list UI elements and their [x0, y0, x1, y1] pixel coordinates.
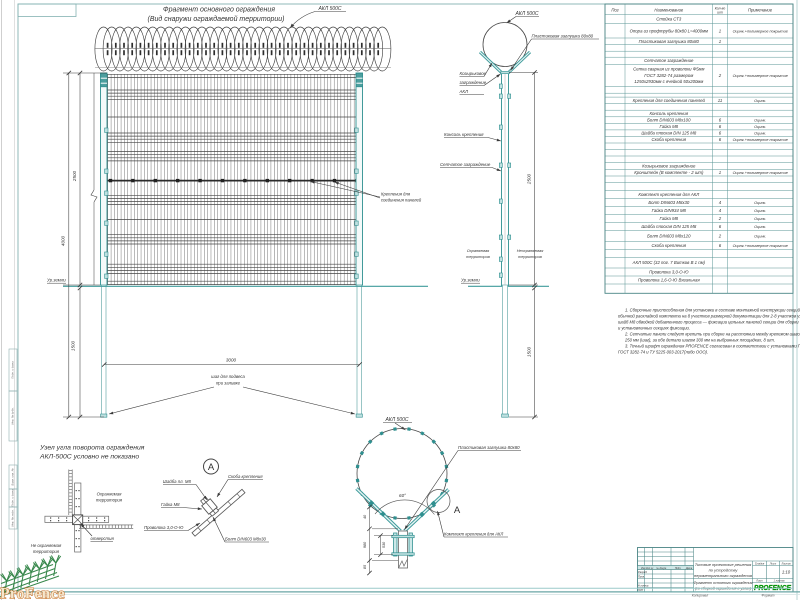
svg-text:Козырьковое заграждение: Козырьковое заграждение	[642, 164, 696, 169]
svg-text:Оцинк.: Оцинк.	[754, 217, 766, 221]
svg-text:соединения панелей: соединения панелей	[381, 198, 422, 203]
svg-text:периметрального ограждения: периметрального ограждения	[694, 573, 753, 578]
svg-text:Крепления для соединения панел: Крепления для соединения панелей	[633, 98, 706, 103]
svg-text:Стадия: Стадия	[755, 563, 765, 566]
svg-text:АКЛ 500С: АКЛ 500С	[317, 6, 341, 12]
svg-text:Оцинк.+полимерное покрытие: Оцинк.+полимерное покрытие	[733, 244, 788, 248]
svg-text:Оцинк.+полимерное покрытие: Оцинк.+полимерное покрытие	[733, 138, 788, 142]
svg-text:Оцинк.+полимерное покрытие: Оцинк.+полимерное покрытие	[733, 74, 788, 78]
svg-text:Консоль крепления: Консоль крепления	[649, 111, 688, 116]
svg-text:Скоба крепления: Скоба крепления	[652, 137, 687, 142]
svg-text:Подп. и дата: Подп. и дата	[11, 489, 15, 507]
svg-text:Охраняемая: Охраняемая	[97, 492, 123, 497]
svg-text:Инв. № подл.: Инв. № подл.	[11, 509, 15, 527]
svg-text:Сетчатое заграждение: Сетчатое заграждение	[644, 58, 694, 63]
svg-text:Шайба плоская DIN 125 М8: Шайба плоская DIN 125 М8	[641, 224, 697, 229]
svg-text:ГОСТ 3282-74 и ТУ 5225-003-201: ГОСТ 3282-74 и ТУ 5225-003-2017(либо ООО…	[618, 350, 708, 355]
svg-text:Проволока 1,6-О-Ю Вязальная: Проволока 1,6-О-Ю Вязальная	[638, 278, 700, 283]
svg-text:Опора из профтрубы 80х80 L=400: Опора из профтрубы 80х80 L=4000мм	[630, 28, 708, 33]
svg-text:при заливке: при заливке	[216, 381, 241, 386]
svg-text:ProFence: ProFence	[0, 586, 65, 601]
svg-text:Скоба крепления: Скоба крепления	[228, 474, 263, 479]
svg-text:Комплект крепления для АКЛ: Комплект крепления для АКЛ	[638, 192, 699, 197]
svg-text:Гайка DIN934 М8: Гайка DIN934 М8	[652, 208, 687, 213]
svg-text:Болт DIN603 М8х30: Болт DIN603 М8х30	[225, 537, 267, 542]
svg-text:Охраняемая: Охраняемая	[467, 248, 489, 253]
svg-text:Проволока 3,0-О-Ю: Проволока 3,0-О-Ю	[649, 270, 689, 275]
svg-text:4000: 4000	[61, 235, 66, 246]
svg-text:Оцинк.+полимерное покрытие: Оцинк.+полимерное покрытие	[733, 171, 788, 175]
svg-text:3000: 3000	[226, 358, 237, 363]
svg-text:Инв. № дубл.: Инв. № дубл.	[11, 407, 15, 424]
svg-text:Оцинк.: Оцинк.	[754, 235, 766, 239]
svg-text:1250х2930мм с ячейкой 50х200мм: 1250х2930мм с ячейкой 50х200мм	[634, 79, 703, 84]
svg-text:Стойка СТ3: Стойка СТ3	[656, 17, 682, 22]
svg-text:АКЛ 500С (32 пог. 7 Витков В 1: АКЛ 500С (32 пог. 7 Витков В 1 пм)	[632, 260, 706, 265]
svg-text:АКЛ 500С: АКЛ 500С	[514, 11, 538, 17]
svg-text:шаг для подвеса: шаг для подвеса	[211, 374, 245, 379]
svg-text:Гайка М8: Гайка М8	[660, 124, 679, 129]
svg-text:Оцинк.: Оцинк.	[754, 209, 766, 213]
svg-text:1:10: 1:10	[782, 570, 791, 575]
svg-text:Проволока 3,0-О-Ю: Проволока 3,0-О-Ю	[144, 525, 184, 530]
svg-text:ГОСТ 3282-74 размером: ГОСТ 3282-74 размером	[644, 73, 693, 78]
svg-text:1500: 1500	[527, 346, 532, 357]
svg-text:территория: территория	[466, 254, 490, 259]
svg-text:Н.контр.: Н.контр.	[638, 584, 649, 588]
svg-text:Пластиковая заглушка 80х80: Пластиковая заглушка 80х80	[532, 34, 594, 39]
svg-text:Копировал: Копировал	[692, 594, 709, 598]
svg-text:шт: шт	[717, 11, 723, 15]
svg-text:Шайба плоская DIN 125 М8: Шайба плоская DIN 125 М8	[641, 131, 697, 136]
svg-text:Подп. и дата: Подп. и дата	[11, 361, 15, 379]
svg-text:Кронштейн (В комплекте - 2 шт: Кронштейн (В комплекте - 2 шт)	[634, 170, 704, 175]
svg-text:отверстия: отверстия	[91, 536, 115, 541]
svg-text:Фрагмент основного ограждения: Фрагмент основного ограждения	[694, 581, 753, 585]
svg-text:Взам. инв. №: Взам. инв. №	[11, 468, 15, 485]
svg-text:Поз: Поз	[611, 8, 618, 13]
svg-text:территория: территория	[518, 254, 542, 259]
svg-text:Листов: Листов	[780, 563, 791, 566]
svg-text:Примечание: Примечание	[748, 8, 773, 13]
svg-text:60°: 60°	[399, 493, 406, 498]
svg-text:(Вид снаружи ограждаемой терри: (Вид снаружи ограждаемой территории)	[148, 15, 285, 23]
svg-text:обычной раскладкой комплекта н: обычной раскладкой комплекта на 8 участк…	[618, 314, 800, 319]
svg-text:Козырьковое: Козырьковое	[460, 71, 487, 76]
svg-text:Гайка М8: Гайка М8	[660, 216, 679, 221]
svg-text:территория: территория	[33, 549, 60, 554]
svg-text:Не охраняемая: Не охраняемая	[31, 543, 62, 548]
svg-text:Разраб.: Разраб.	[638, 570, 648, 574]
svg-text:Сетка сварная из проволоки Ф5м: Сетка сварная из проволоки Ф5мм	[633, 67, 704, 72]
svg-text:Узел угла поворота ограждения: Узел угла поворота ограждения	[39, 444, 145, 452]
svg-text:Пров.: Пров.	[638, 575, 645, 579]
svg-text:3. Точный шрифт ограждения PRO: 3. Точный шрифт ограждения PROFENCE согл…	[625, 344, 800, 349]
svg-text:Неохраняемая: Неохраняемая	[517, 248, 544, 253]
svg-text:Лист: Лист	[769, 563, 776, 566]
svg-text:Оцинк.: Оцинк.	[754, 119, 766, 123]
svg-text:530: 530	[382, 541, 386, 548]
svg-text:Болт DIN603 М8х100: Болт DIN603 М8х100	[647, 118, 691, 123]
svg-text:Оцинк.: Оцинк.	[754, 225, 766, 229]
svg-text:2500: 2500	[72, 170, 77, 182]
svg-text:АКЛ: АКЛ	[459, 89, 470, 94]
svg-text:250 мм (шаг), за обе детали ша: 250 мм (шаг), за обе детали шагом 300 мм…	[624, 338, 775, 343]
svg-text:Лист: Лист	[755, 580, 762, 583]
svg-text:Оцинк.+полимерное покрытие: Оцинк.+полимерное покрытие	[733, 29, 788, 33]
svg-text:Оцинк.: Оцинк.	[754, 132, 766, 136]
svg-text:Гайка М8: Гайка М8	[161, 502, 180, 507]
svg-text:Ур.земли: Ур.земли	[47, 278, 66, 283]
svg-text:заграждение: заграждение	[459, 80, 487, 85]
svg-text:Сетчатое заграждение: Сетчатое заграждение	[440, 162, 491, 167]
svg-text:Наименование: Наименование	[654, 8, 684, 13]
svg-text:Оцинк.: Оцинк.	[754, 201, 766, 205]
svg-text:Дата: Дата	[685, 567, 693, 570]
svg-text:АКЛ 500С: АКЛ 500С	[384, 417, 408, 423]
svg-text:по устройству: по устройству	[709, 568, 739, 573]
svg-text:1 листов: 1 листов	[774, 580, 786, 583]
svg-text:Пластиковая заглушка 80х80: Пластиковая заглушка 80х80	[639, 39, 700, 44]
svg-text:Болт DIN603 М8х30: Болт DIN603 М8х30	[648, 200, 690, 205]
svg-text:980: 980	[363, 541, 367, 548]
svg-text:Консоль крепления: Консоль крепления	[444, 132, 484, 137]
svg-text:А: А	[208, 462, 215, 473]
svg-text:2. Сетчатые панели следует кре: 2. Сетчатые панели следует крепить при с…	[624, 332, 800, 337]
svg-text:1. Сборочные приспособления дл: 1. Сборочные приспособления для установк…	[625, 308, 800, 313]
svg-text:Пластиковая заглушка 80х80: Пластиковая заглушка 80х80	[458, 445, 520, 450]
svg-text:2500: 2500	[527, 173, 532, 185]
svg-text:Болт DIN603 М8х120: Болт DIN603 М8х120	[647, 234, 691, 239]
svg-text:Шайба пл. М8: Шайба пл. М8	[163, 479, 191, 484]
svg-text:Формат: Формат	[761, 594, 774, 598]
svg-text:Комплект крепления для АКЛ: Комплект крепления для АКЛ	[444, 532, 503, 537]
svg-text:Ур.земли: Ур.земли	[461, 278, 480, 283]
svg-text:АКЛ-500С условно не показано: АКЛ-500С условно не показано	[39, 454, 139, 461]
svg-text:и установленных секциях фиксац: и установленных секциях фиксации.	[618, 326, 690, 331]
svg-text:№ докум.: № докум.	[656, 567, 667, 570]
svg-text:территория: территория	[96, 498, 123, 503]
svg-text:1500: 1500	[71, 340, 76, 351]
svg-text:Изм Кол.уч: Изм Кол.уч	[641, 567, 654, 570]
svg-text:Оцинк.: Оцинк.	[754, 99, 766, 103]
svg-text:шайб М8 обводкой добавленного: шайб М8 обводкой добавленного процесса —…	[618, 320, 799, 325]
svg-text:Фрагмент основного ограждения: Фрагмент основного ограждения	[163, 6, 275, 14]
svg-text:11: 11	[718, 98, 723, 103]
svg-text:Типовые проектные решения: Типовые проектные решения	[695, 562, 752, 567]
svg-text:Скоба крепления: Скоба крепления	[652, 243, 687, 248]
svg-text:Крепления для: Крепления для	[381, 192, 411, 197]
svg-text:А: А	[454, 505, 461, 516]
svg-text:Подп.: Подп.	[675, 567, 682, 570]
svg-text:Оцинк.: Оцинк.	[754, 125, 766, 129]
